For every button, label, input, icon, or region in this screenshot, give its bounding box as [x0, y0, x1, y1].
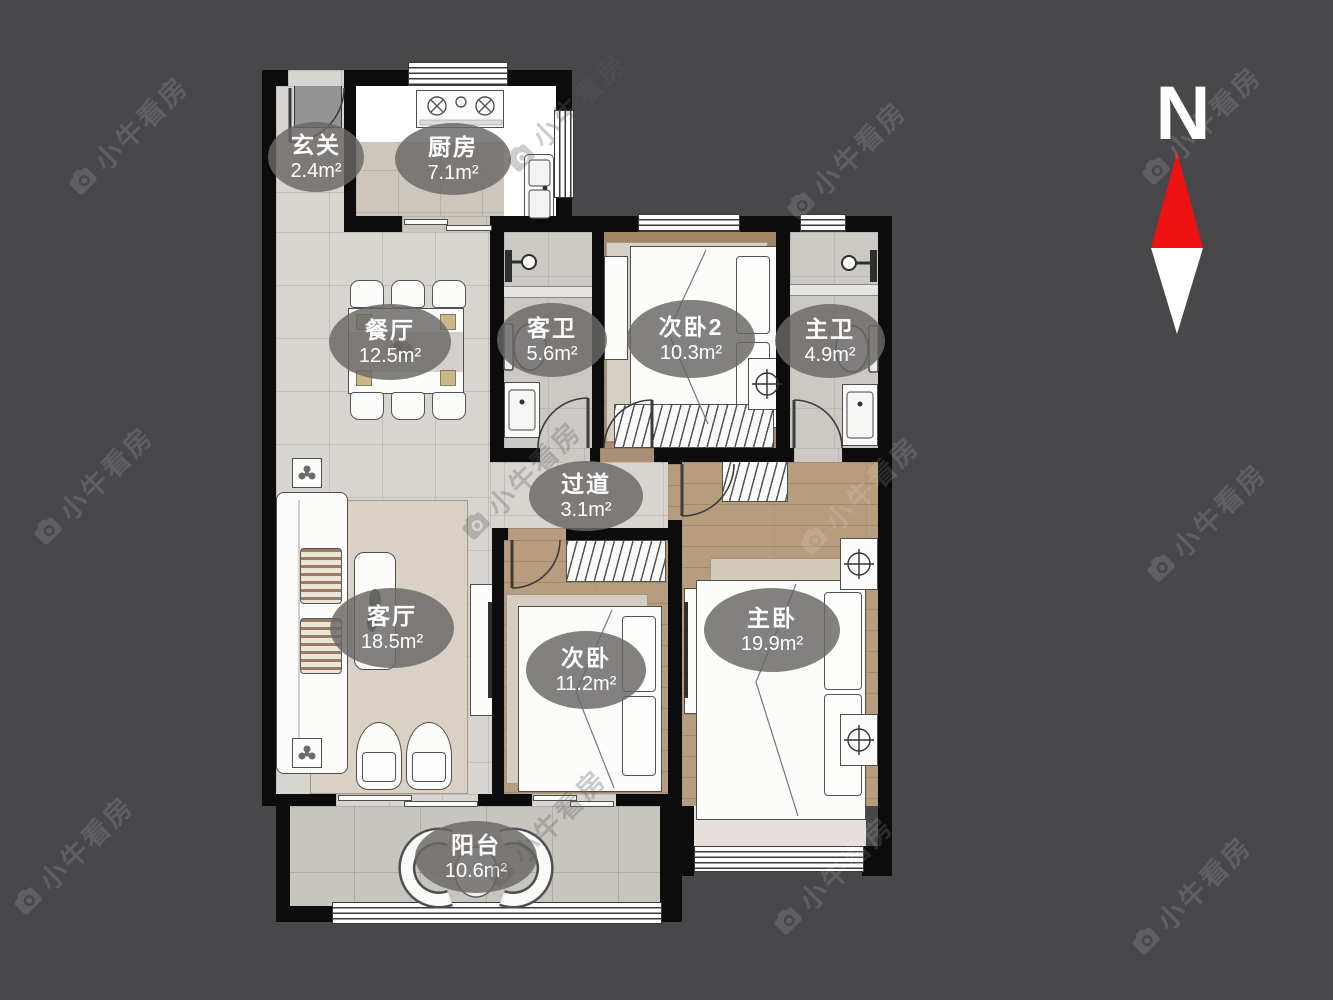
watermark: 小牛看房 — [1121, 826, 1260, 965]
kitchen-sink — [524, 154, 554, 222]
watermark-text: 小牛看房 — [84, 66, 196, 178]
room-name: 主卧 — [747, 606, 797, 631]
place-setting — [440, 370, 456, 386]
wall-segment — [682, 806, 694, 876]
camera-icon — [1125, 920, 1165, 960]
dining-chair — [350, 392, 384, 420]
armchair-cushion — [362, 752, 396, 782]
room-area: 5.6m² — [526, 344, 577, 364]
window — [408, 62, 508, 86]
wall-segment — [262, 70, 276, 806]
camera-icon — [7, 880, 47, 920]
room-name: 过道 — [561, 472, 611, 497]
sliding-door — [570, 801, 614, 807]
floor-plan-page: 玄关 2.4m² 厨房 7.1m² 餐厅 12.5m² 客卫 5.6m² 次卧2… — [0, 0, 1333, 1000]
vanity — [504, 382, 540, 438]
plant-table — [292, 738, 322, 768]
room-label-guest-bath: 客卫 5.6m² — [497, 303, 607, 377]
room-area: 2.4m² — [290, 161, 341, 181]
watermark: 小牛看房 — [776, 91, 915, 230]
pillow — [622, 696, 656, 776]
wardrobe-bedroom — [566, 540, 666, 582]
door-opening — [668, 464, 682, 520]
wardrobe-bedroom2 — [614, 404, 774, 448]
room-name: 客卫 — [527, 316, 577, 341]
watermark-text: 小牛看房 — [802, 91, 914, 203]
room-label-balcony: 阳台 10.6m² — [415, 821, 537, 893]
room-label-kitchen: 厨房 7.1m² — [395, 123, 511, 195]
door-opening — [540, 448, 590, 462]
tv-master — [684, 602, 688, 698]
shower-divider — [790, 284, 878, 296]
wall-segment — [862, 846, 892, 876]
floor-opening — [490, 462, 504, 528]
watermark-text: 小牛看房 — [1147, 826, 1259, 938]
throw-pillow — [300, 548, 342, 604]
room-label-hallway: 过道 3.1m² — [529, 461, 643, 531]
room-area: 12.5m² — [359, 346, 421, 366]
room-label-bedroom: 次卧 11.2m² — [526, 631, 646, 709]
compass-arrow-icon — [1147, 146, 1207, 338]
room-label-bedroom2: 次卧2 10.3m² — [627, 300, 755, 378]
camera-icon — [27, 510, 67, 550]
camera-icon — [1140, 547, 1180, 587]
window — [638, 214, 740, 232]
sliding-door — [338, 795, 412, 801]
door-opening — [600, 448, 654, 462]
room-area: 18.5m² — [361, 632, 423, 652]
dining-chair — [432, 392, 466, 420]
ac-unit — [840, 714, 878, 766]
window-bay — [694, 846, 864, 872]
room-area: 3.1m² — [560, 500, 611, 520]
watermark-text: 小牛看房 — [29, 786, 141, 898]
room-area: 4.9m² — [804, 345, 855, 365]
door-opening — [288, 70, 344, 86]
vanity — [842, 384, 878, 446]
room-label-dining: 餐厅 12.5m² — [329, 304, 451, 380]
sliding-door — [404, 219, 448, 225]
camera-icon — [62, 160, 102, 200]
dining-chair — [432, 280, 466, 308]
nightstand — [604, 256, 628, 360]
room-name: 主卫 — [805, 317, 855, 342]
room-area: 10.6m² — [445, 861, 507, 881]
room-area: 10.3m² — [660, 343, 722, 363]
room-area: 19.9m² — [741, 634, 803, 654]
watermark: 小牛看房 — [3, 786, 142, 925]
shower-divider — [504, 286, 592, 298]
compass-north-label: N — [1152, 76, 1214, 152]
wall-segment — [276, 906, 338, 922]
window — [800, 214, 846, 232]
dining-chair — [391, 392, 425, 420]
room-name: 餐厅 — [365, 318, 415, 343]
room-label-entry: 玄关 2.4m² — [268, 122, 364, 192]
room-name: 阳台 — [451, 833, 501, 858]
window — [554, 110, 574, 198]
room-label-master-bath: 主卫 4.9m² — [775, 304, 885, 378]
wall-segment — [878, 216, 892, 876]
watermark-text: 小牛看房 — [1162, 453, 1274, 565]
room-name: 次卧 — [561, 646, 611, 671]
watermark-text: 小牛看房 — [49, 416, 161, 528]
ac-unit — [840, 538, 878, 590]
room-area: 7.1m² — [427, 163, 478, 183]
room-name: 玄关 — [291, 133, 341, 158]
wall-segment — [492, 528, 504, 806]
room-area: 11.2m² — [556, 674, 617, 694]
sliding-door — [404, 801, 478, 807]
door-opening — [508, 528, 566, 540]
watermark: 小牛看房 — [58, 66, 197, 205]
wall-segment — [276, 794, 290, 922]
door-opening — [794, 448, 842, 462]
watermark: 小牛看房 — [1136, 453, 1275, 592]
armchair-cushion — [412, 752, 446, 782]
room-label-master-bedroom: 主卧 19.9m² — [704, 588, 840, 672]
room-name: 客厅 — [367, 604, 417, 629]
plant-table — [292, 458, 322, 488]
camera-icon — [767, 900, 807, 940]
room-label-living: 客厅 18.5m² — [330, 588, 454, 668]
sliding-door — [446, 225, 492, 231]
window-balcony — [332, 902, 662, 924]
watermark: 小牛看房 — [23, 416, 162, 555]
room-name: 厨房 — [428, 135, 478, 160]
wall-segment — [660, 806, 682, 922]
room-name: 次卧2 — [659, 315, 724, 340]
